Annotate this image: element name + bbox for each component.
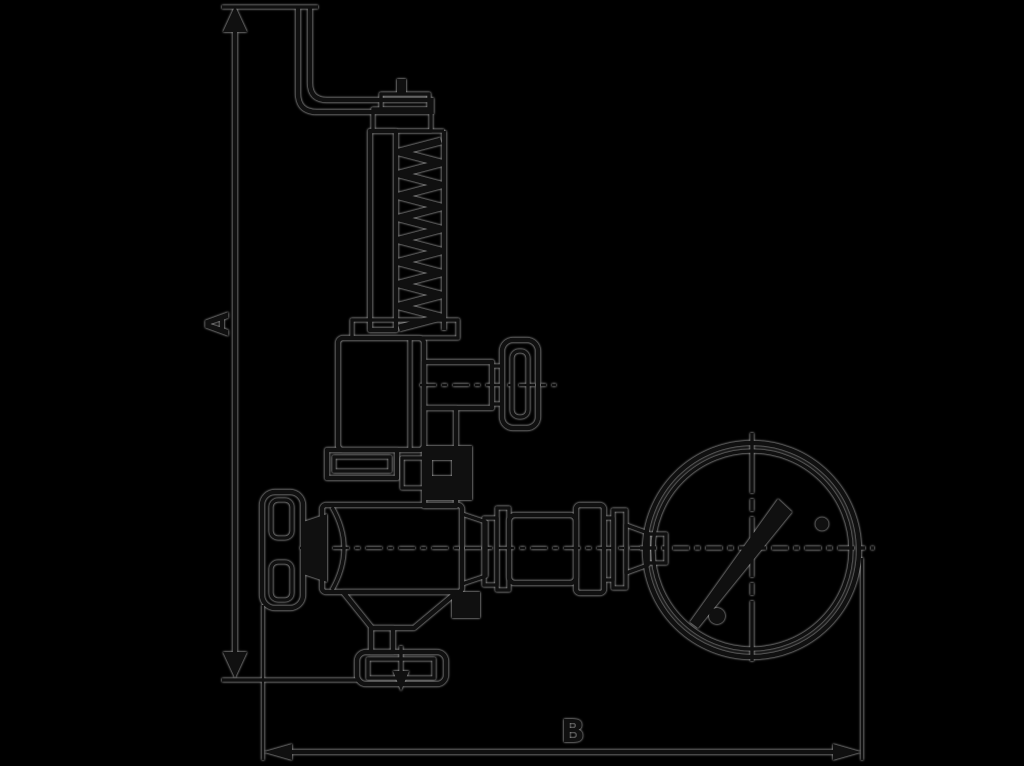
adjusting-cap xyxy=(373,79,431,131)
yoke-bracket xyxy=(424,446,472,500)
dimension-a-arrow-up xyxy=(223,6,247,32)
lower-flange-inset xyxy=(334,457,390,471)
inlet-handwheel-slot-top xyxy=(271,500,292,538)
inlet-handwheel-slot-bottom xyxy=(271,562,292,600)
housing-left-wall xyxy=(370,131,396,330)
bonnet-lower xyxy=(327,408,472,506)
dimension-b-label: B xyxy=(561,714,585,750)
test-connection xyxy=(420,340,556,428)
flow-arrow-head xyxy=(393,671,409,691)
valve-body xyxy=(322,505,486,691)
dimension-b-arrow-left xyxy=(264,744,292,760)
pressure-gauge xyxy=(640,433,874,667)
dimension-a-arrow-down xyxy=(223,652,247,678)
inlet-handwheel xyxy=(262,492,327,608)
dimension-b-arrow-right xyxy=(833,744,861,760)
gauge-needle xyxy=(690,499,792,628)
technical-drawing-canvas: A B xyxy=(0,0,1024,766)
spring-coil xyxy=(399,141,441,328)
outlet-neck xyxy=(371,628,393,652)
release-lever xyxy=(298,8,432,114)
yoke-inset xyxy=(402,458,424,488)
dimension-b: B xyxy=(263,558,862,760)
dimension-a-label: A xyxy=(200,312,236,336)
gauge-screw-upper-right xyxy=(816,518,829,531)
valve-dimensional-drawing: A B xyxy=(0,0,1024,766)
lever-inner-edge xyxy=(310,8,432,100)
lower-flange xyxy=(327,450,397,478)
gauge-screw-lower-left xyxy=(709,608,725,624)
inlet-handwheel-rim xyxy=(262,492,303,608)
spring-housing xyxy=(338,131,458,450)
outlet-transition xyxy=(343,592,457,628)
body-drain-plug xyxy=(452,592,480,618)
